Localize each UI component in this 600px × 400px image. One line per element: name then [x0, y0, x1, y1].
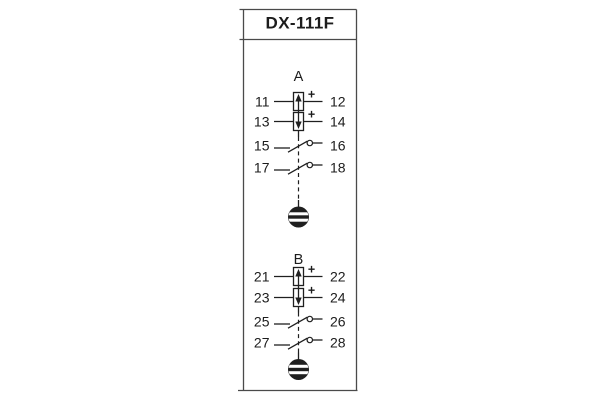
contact-fixed-point [307, 316, 312, 321]
terminal-row: 27 28 [254, 335, 346, 351]
terminal-row: 25 26 [254, 314, 346, 330]
up-arrow-icon [295, 269, 301, 277]
polarity-plus: + [308, 88, 315, 102]
terminal-number-left: 17 [254, 160, 270, 176]
contact-blade [288, 163, 307, 174]
terminal-number-right: 26 [330, 314, 346, 330]
polarity-plus: + [308, 263, 315, 277]
terminal-row: 23 + 24 [254, 284, 346, 307]
terminal-number-left: 13 [254, 114, 270, 130]
relay-panel: DX-111F [238, 10, 358, 391]
section-a: A 11 + 12 13 + 14 15 [254, 69, 346, 228]
section-label: A [294, 69, 304, 85]
relay-diagram: DX-111F A 11 + 12 13 + 14 [0, 0, 600, 400]
terminal-number-right: 18 [330, 160, 346, 176]
contact-fixed-point [307, 162, 312, 167]
terminal-row: 15 16 [254, 138, 346, 154]
terminal-number-right: 24 [330, 290, 346, 306]
down-arrow-icon [295, 122, 301, 130]
contact-fixed-point [307, 140, 312, 145]
contact-blade [288, 317, 307, 328]
contact-blade [288, 141, 307, 152]
relay-title: DX-111F [266, 14, 335, 33]
drop-flag-indicator-icon [287, 359, 310, 380]
terminal-number-left: 25 [254, 314, 270, 330]
terminal-number-right: 16 [330, 138, 346, 154]
terminal-number-right: 14 [330, 114, 346, 130]
terminal-number-left: 27 [254, 335, 270, 351]
polarity-plus: + [308, 108, 315, 122]
terminal-number-left: 11 [255, 94, 270, 110]
terminal-row: 11 + 12 [255, 88, 346, 111]
drop-flag-indicator-icon [287, 207, 310, 228]
contact-fixed-point [307, 337, 312, 342]
contact-blade [288, 338, 307, 349]
terminal-number-left: 21 [254, 269, 270, 285]
terminal-number-right: 12 [330, 94, 346, 110]
terminal-number-left: 23 [254, 290, 270, 306]
terminal-row: 17 18 [254, 160, 346, 176]
down-arrow-icon [295, 298, 301, 306]
section-label: B [294, 252, 304, 268]
terminal-number-right: 28 [330, 335, 346, 351]
polarity-plus: + [308, 284, 315, 298]
terminal-number-right: 22 [330, 269, 346, 285]
up-arrow-icon [295, 94, 301, 102]
section-b: B 21 + 22 23 + 24 25 [254, 252, 346, 380]
terminal-number-left: 15 [254, 138, 270, 154]
